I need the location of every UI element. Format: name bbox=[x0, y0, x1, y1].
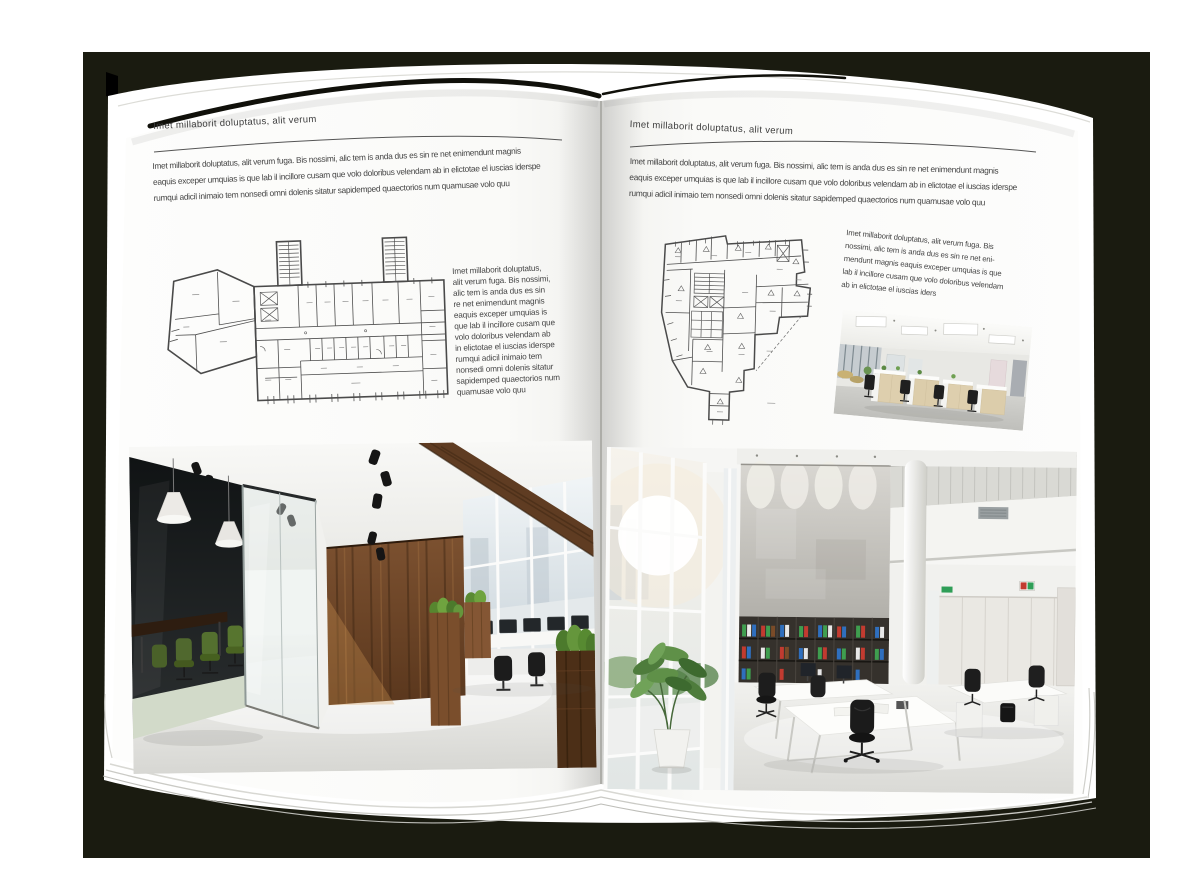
glass-partition bbox=[243, 484, 329, 729]
plan-window-ticks bbox=[660, 236, 814, 427]
foreground-planter bbox=[556, 624, 597, 768]
safety-sign bbox=[1020, 581, 1035, 590]
left-page-side-text: Imet millaborit doluptatus, alit verum f… bbox=[452, 261, 587, 398]
right-atrium-photo bbox=[603, 447, 1077, 794]
tall-column bbox=[903, 460, 927, 684]
magazine-mockup: Imet millaborit doluptatus, alit verum I… bbox=[0, 0, 1200, 891]
right-small-office-photo bbox=[834, 310, 1033, 431]
concrete-feature-wall bbox=[739, 460, 891, 618]
plan-window-ticks bbox=[168, 277, 444, 407]
left-office-photo bbox=[129, 441, 597, 774]
waste-bin bbox=[1000, 703, 1015, 722]
plan-stairs bbox=[258, 237, 407, 321]
right-floor-plan bbox=[647, 220, 842, 429]
plan-door-marks bbox=[671, 242, 801, 406]
exit-sign bbox=[941, 587, 952, 593]
left-floor-plan bbox=[156, 222, 454, 416]
plan-outer-walls bbox=[659, 234, 812, 422]
plan-outer-walls bbox=[164, 236, 447, 404]
meeting-room bbox=[129, 455, 246, 739]
plan-annotations bbox=[182, 286, 437, 389]
